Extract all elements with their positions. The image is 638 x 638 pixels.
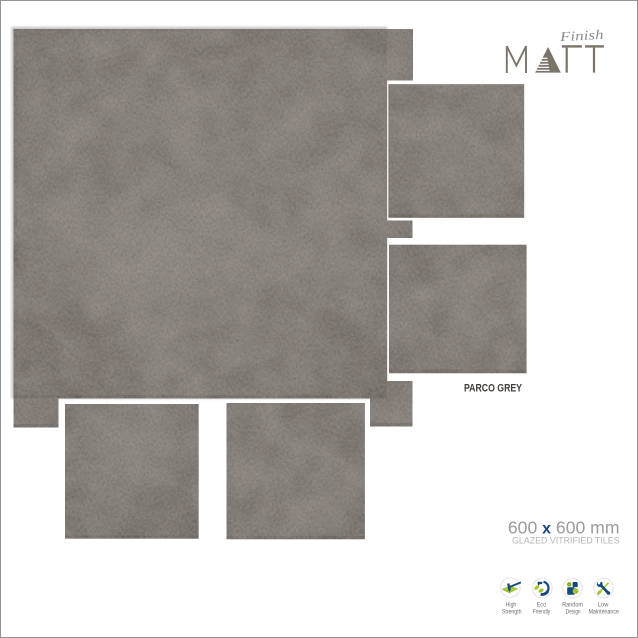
svg-text:Random: Random xyxy=(562,601,583,608)
svg-text:PARCO GREY: PARCO GREY xyxy=(464,383,522,395)
svg-text:GLAZED VITRIFIED TILES: GLAZED VITRIFIED TILES xyxy=(512,536,620,546)
svg-text:600 x 600 mm: 600 x 600 mm xyxy=(508,517,620,537)
svg-text:Maintenance: Maintenance xyxy=(589,609,620,616)
svg-text:Finish: Finish xyxy=(558,27,604,44)
svg-text:Low: Low xyxy=(598,601,608,608)
svg-text:High: High xyxy=(506,601,517,608)
svg-text:Friendly: Friendly xyxy=(533,609,551,616)
svg-text:Design: Design xyxy=(566,609,581,616)
svg-text:Eco: Eco xyxy=(537,601,547,608)
svg-text:Strength: Strength xyxy=(502,609,522,616)
